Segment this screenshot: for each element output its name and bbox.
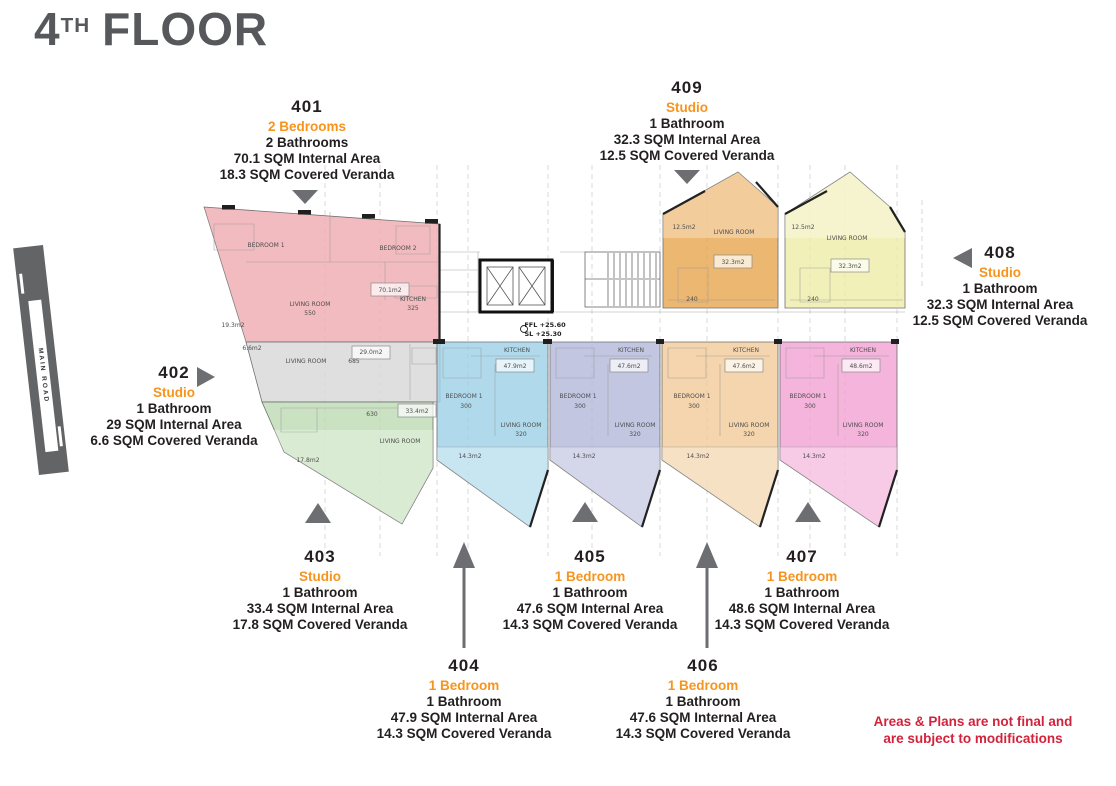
plan-room-label: LIVING ROOM [290,301,331,308]
unit-type: Studio [90,385,257,401]
arrow-up-406-stem [706,568,709,648]
unit-covered-veranda: 14.3 SQM Covered Veranda [377,726,552,742]
unit-callout-405: 405 1 Bedroom 1 Bathroom 47.6 SQM Intern… [503,547,678,633]
plan-room-label: KITCHEN [733,347,759,354]
unit-covered-veranda: 14.3 SQM Covered Veranda [616,726,791,742]
unit-type: Studio [600,100,775,116]
unit-number: 402 [90,363,257,383]
unit-callout-409: 409 Studio 1 Bathroom 32.3 SQM Internal … [600,78,775,164]
plan-room-label: LIVING ROOM [714,229,755,236]
plan-room-label: 32.3m2 [721,259,744,266]
arrow-up-403 [305,503,331,523]
unit-callout-408: 408 Studio 1 Bathroom 32.3 SQM Internal … [913,243,1088,329]
plan-room-label: 14.3m2 [802,453,825,460]
plan-room-label: 685 [348,358,360,365]
plan-room-label: 300 [804,403,816,410]
unit-internal-area: 48.6 SQM Internal Area [715,601,890,617]
plan-room-label: 300 [574,403,586,410]
plan-room-label: 320 [515,431,527,438]
plan-room-label: 33.4m2 [405,408,428,415]
unit-covered-veranda: 12.5 SQM Covered Veranda [913,313,1088,329]
unit-internal-area: 70.1 SQM Internal Area [220,151,395,167]
unit-internal-area: 32.3 SQM Internal Area [600,132,775,148]
unit-covered-veranda: 14.3 SQM Covered Veranda [503,617,678,633]
unit-type: Studio [913,265,1088,281]
plan-room-label: 14.3m2 [572,453,595,460]
plan-room-label: 17.8m2 [296,457,319,464]
unit-number: 403 [233,547,408,567]
unit-number: 406 [616,656,791,676]
unit-callout-406: 406 1 Bedroom 1 Bathroom 47.6 SQM Intern… [616,656,791,742]
plan-room-label: 300 [688,403,700,410]
plan-room-label: 14.3m2 [458,453,481,460]
unit-type: Studio [233,569,408,585]
unit-bathrooms: 1 Bathroom [600,116,775,132]
unit-number: 408 [913,243,1088,263]
unit-bathrooms: 1 Bathroom [233,585,408,601]
unit-internal-area: 33.4 SQM Internal Area [233,601,408,617]
unit-covered-veranda: 14.3 SQM Covered Veranda [715,617,890,633]
unit-bathrooms: 1 Bathroom [616,694,791,710]
plan-room-label: BEDROOM 1 [247,242,284,249]
unit-callout-404: 404 1 Bedroom 1 Bathroom 47.9 SQM Intern… [377,656,552,742]
unit-type: 1 Bedroom [377,678,552,694]
road-lane-dash [58,426,63,446]
unit-number: 407 [715,547,890,567]
arrow-down-401 [292,190,318,204]
unit-covered-veranda: 6.6 SQM Covered Veranda [90,433,257,449]
plan-room-label: LIVING ROOM [729,422,770,429]
unit-bathrooms: 2 Bathrooms [220,135,395,151]
plan-room-label: 6.6m2 [242,345,261,352]
unit-covered-veranda: 17.8 SQM Covered Veranda [233,617,408,633]
unit-type: 2 Bedrooms [220,119,395,135]
plan-room-label: 47.6m2 [617,363,640,370]
plan-room-label: 32.3m2 [838,263,861,270]
plan-room-label: LIVING ROOM [501,422,542,429]
unit-internal-area: 29 SQM Internal Area [90,417,257,433]
title-number: 4 [34,3,61,55]
unit-callout-401: 401 2 Bedrooms 2 Bathrooms 70.1 SQM Inte… [220,97,395,183]
plan-room-label: 12.5m2 [791,224,814,231]
disclaimer-line-1: Areas & Plans are not final and [874,713,1073,730]
arrow-up-404-stem [463,568,466,648]
plan-room-label: BEDROOM 1 [789,393,826,400]
plan-room-label: 240 [807,296,819,303]
plan-room-label: LIVING ROOM [843,422,884,429]
arrow-up-407 [795,502,821,522]
arrow-up-404-head [453,542,475,568]
main-road-label: MAIN ROAD [37,348,50,404]
plan-room-label: FFL +25.60 [524,321,566,329]
unit-bathrooms: 1 Bathroom [715,585,890,601]
disclaimer: Areas & Plans are not final and are subj… [874,713,1073,747]
plan-room-label: KITCHEN [400,296,426,303]
plan-room-label: 300 [460,403,472,410]
plan-room-label: 47.6m2 [732,363,755,370]
plan-room-label: 19.3m2 [221,322,244,329]
plan-room-label: BEDROOM 1 [673,393,710,400]
elevator-core [480,260,552,312]
plan-room-label: 630 [366,411,378,418]
unit-bathrooms: 1 Bathroom [913,281,1088,297]
plan-room-label: 320 [857,431,869,438]
plan-room-label: KITCHEN [618,347,644,354]
plan-room-label: 29.0m2 [359,349,382,356]
unit-internal-area: 47.9 SQM Internal Area [377,710,552,726]
unit-internal-area: 32.3 SQM Internal Area [913,297,1088,313]
unit-type: 1 Bedroom [503,569,678,585]
plan-room-label: 70.1m2 [378,287,401,294]
title-ordinal: TH [61,14,91,37]
page-title: 4THFLOOR [34,2,268,56]
plan-room-label: BEDROOM 2 [379,245,416,252]
unit-bathrooms: 1 Bathroom [503,585,678,601]
plan-room-label: KITCHEN [504,347,530,354]
plan-room-label: 325 [407,305,419,312]
arrow-down-409 [674,170,700,184]
plan-room-label: LIVING ROOM [615,422,656,429]
unit-number: 405 [503,547,678,567]
unit-number: 409 [600,78,775,98]
unit-internal-area: 47.6 SQM Internal Area [616,710,791,726]
unit-number: 404 [377,656,552,676]
unit-callout-407: 407 1 Bedroom 1 Bathroom 48.6 SQM Intern… [715,547,890,633]
plan-room-label: 48.6m2 [849,363,872,370]
plan-room-label: 47.9m2 [503,363,526,370]
plan-room-label: 240 [686,296,698,303]
disclaimer-line-2: are subject to modifications [874,730,1073,747]
unit-bathrooms: 1 Bathroom [377,694,552,710]
unit-internal-area: 47.6 SQM Internal Area [503,601,678,617]
unit-covered-veranda: 18.3 SQM Covered Veranda [220,167,395,183]
road-lane-dash [19,274,24,294]
unit-callout-403: 403 Studio 1 Bathroom 33.4 SQM Internal … [233,547,408,633]
plan-room-label: LIVING ROOM [286,358,327,365]
plan-room-label: 12.5m2 [672,224,695,231]
unit-callout-402: 402 Studio 1 Bathroom 29 SQM Internal Ar… [90,363,257,449]
arrow-up-405 [572,502,598,522]
unit-covered-veranda: 12.5 SQM Covered Veranda [600,148,775,164]
unit-type: 1 Bedroom [715,569,890,585]
unit-type: 1 Bedroom [616,678,791,694]
floor-plan-page: BEDROOM 1BEDROOM 2LIVING ROOM550KITCHEN3… [0,0,1116,786]
plan-room-label: SL +25.30 [524,330,562,338]
title-word: FLOOR [102,3,268,55]
stairs [585,252,660,307]
plan-room-label: LIVING ROOM [380,438,421,445]
unit-region-402 [246,342,440,402]
plan-room-label: BEDROOM 1 [559,393,596,400]
plan-room-label: KITCHEN [850,347,876,354]
unit-bathrooms: 1 Bathroom [90,401,257,417]
plan-room-label: BEDROOM 1 [445,393,482,400]
plan-room-label: 550 [304,310,316,317]
plan-room-label: 14.3m2 [686,453,709,460]
plan-room-label: LIVING ROOM [827,235,868,242]
unit-number: 401 [220,97,395,117]
plan-room-label: 320 [743,431,755,438]
plan-room-label: 320 [629,431,641,438]
